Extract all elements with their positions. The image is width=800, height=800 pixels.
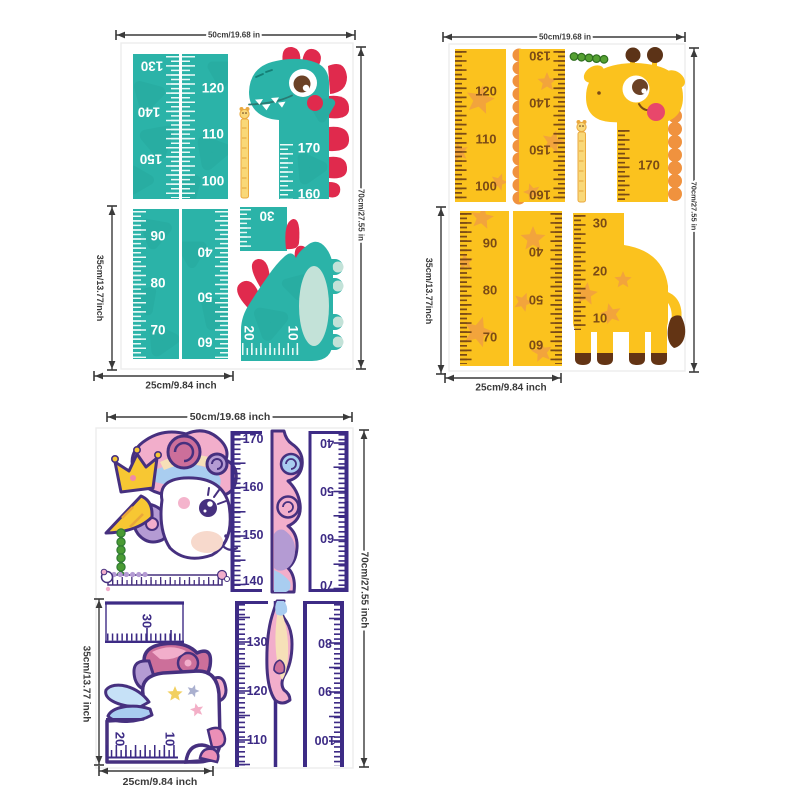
- svg-text:20: 20: [113, 732, 128, 746]
- svg-text:10: 10: [593, 311, 607, 326]
- svg-text:100: 100: [202, 174, 225, 189]
- svg-text:20: 20: [242, 325, 257, 340]
- svg-text:170: 170: [298, 141, 321, 156]
- svg-text:70cm/27.55 in: 70cm/27.55 in: [357, 189, 366, 241]
- svg-text:140: 140: [529, 96, 551, 111]
- svg-text:30: 30: [593, 216, 607, 231]
- svg-text:170: 170: [243, 432, 264, 446]
- svg-text:130: 130: [141, 59, 164, 74]
- svg-text:70: 70: [150, 323, 165, 338]
- svg-text:140: 140: [243, 574, 264, 588]
- svg-text:20: 20: [593, 264, 607, 279]
- svg-text:70: 70: [320, 578, 334, 592]
- svg-text:150: 150: [243, 528, 264, 542]
- svg-text:50cm/19.68 in: 50cm/19.68 in: [208, 31, 260, 40]
- svg-text:35cm/13.77inch: 35cm/13.77inch: [424, 258, 434, 325]
- svg-text:10: 10: [286, 325, 301, 340]
- svg-text:10: 10: [163, 732, 178, 746]
- svg-text:160: 160: [243, 480, 264, 494]
- svg-text:40: 40: [320, 436, 334, 450]
- svg-text:30: 30: [140, 614, 155, 628]
- svg-text:90: 90: [483, 236, 497, 251]
- svg-text:80: 80: [483, 283, 497, 298]
- svg-text:80: 80: [318, 636, 332, 650]
- svg-text:130: 130: [529, 49, 551, 64]
- svg-text:50: 50: [529, 293, 543, 308]
- svg-text:120: 120: [202, 81, 225, 96]
- svg-text:50: 50: [197, 290, 212, 305]
- svg-text:150: 150: [529, 143, 551, 158]
- svg-text:60: 60: [197, 335, 212, 350]
- svg-text:100: 100: [315, 733, 336, 747]
- svg-text:35cm/13.77 inch: 35cm/13.77 inch: [81, 646, 92, 723]
- svg-text:160: 160: [298, 187, 321, 202]
- svg-text:130: 130: [247, 635, 268, 649]
- svg-text:120: 120: [247, 684, 268, 698]
- svg-text:120: 120: [475, 84, 497, 99]
- svg-text:170: 170: [638, 158, 660, 173]
- svg-text:30: 30: [259, 209, 274, 224]
- svg-text:70cm/27.55 in: 70cm/27.55 in: [690, 182, 699, 231]
- svg-text:90: 90: [318, 684, 332, 698]
- svg-text:160: 160: [529, 188, 551, 203]
- svg-text:35cm/13.77inch: 35cm/13.77inch: [95, 255, 105, 322]
- svg-text:150: 150: [140, 152, 163, 167]
- svg-text:25cm/9.84 inch: 25cm/9.84 inch: [145, 381, 216, 392]
- svg-text:60: 60: [320, 531, 334, 545]
- svg-text:100: 100: [475, 179, 497, 194]
- svg-text:60: 60: [529, 338, 543, 353]
- svg-text:50cm/19.68 inch: 50cm/19.68 inch: [190, 411, 271, 423]
- svg-text:70cm/27.55 inch: 70cm/27.55 inch: [359, 552, 370, 629]
- svg-text:40: 40: [529, 245, 543, 260]
- svg-text:140: 140: [138, 105, 161, 120]
- svg-text:70: 70: [483, 330, 497, 345]
- svg-text:110: 110: [476, 132, 497, 147]
- svg-text:110: 110: [202, 127, 224, 142]
- svg-text:50: 50: [320, 484, 334, 498]
- svg-text:80: 80: [150, 276, 165, 291]
- svg-text:40: 40: [197, 245, 212, 260]
- svg-text:90: 90: [150, 229, 165, 244]
- svg-text:50cm/19.68 in: 50cm/19.68 in: [539, 33, 591, 42]
- svg-text:25cm/9.84 inch: 25cm/9.84 inch: [123, 776, 198, 788]
- svg-text:25cm/9.84 inch: 25cm/9.84 inch: [475, 383, 546, 394]
- svg-text:110: 110: [247, 733, 267, 747]
